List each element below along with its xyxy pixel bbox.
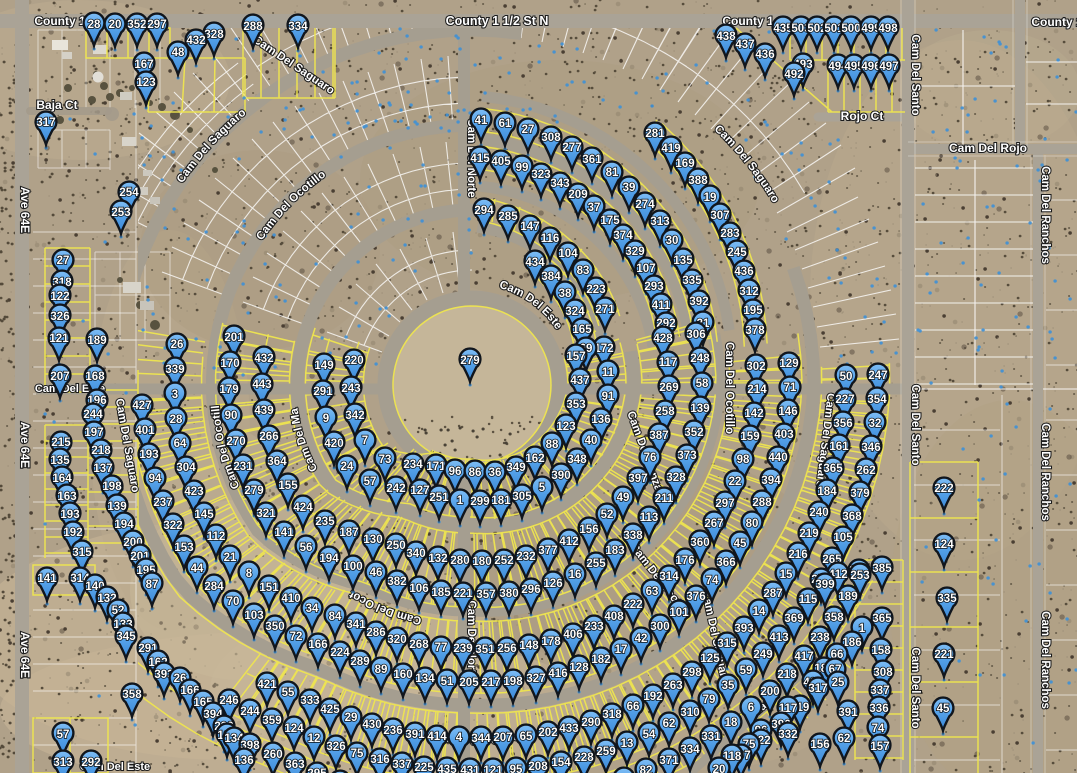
svg-text:417: 417 <box>794 651 813 663</box>
svg-text:192: 192 <box>63 527 82 539</box>
svg-text:166: 166 <box>308 639 327 651</box>
svg-text:11: 11 <box>602 367 615 379</box>
svg-text:281: 281 <box>645 128 665 140</box>
svg-text:113: 113 <box>640 512 659 524</box>
svg-text:245: 245 <box>727 247 747 259</box>
svg-text:132: 132 <box>428 553 447 565</box>
svg-text:365: 365 <box>872 613 892 625</box>
svg-text:237: 237 <box>153 497 172 509</box>
svg-text:99: 99 <box>516 162 529 174</box>
svg-text:359: 359 <box>262 715 281 727</box>
svg-text:124: 124 <box>284 723 304 735</box>
svg-text:15: 15 <box>780 569 793 581</box>
svg-text:315: 315 <box>717 638 737 650</box>
svg-text:128: 128 <box>569 662 589 674</box>
svg-text:162: 162 <box>525 453 544 465</box>
svg-text:151: 151 <box>259 582 279 594</box>
svg-text:437: 437 <box>735 39 754 51</box>
svg-text:313: 313 <box>53 757 72 769</box>
svg-text:263: 263 <box>663 680 682 692</box>
svg-text:41: 41 <box>475 115 488 127</box>
svg-text:224: 224 <box>330 647 350 659</box>
svg-text:340: 340 <box>406 548 425 560</box>
svg-text:45: 45 <box>937 703 950 715</box>
svg-text:344: 344 <box>471 733 491 745</box>
svg-text:217: 217 <box>481 677 500 689</box>
svg-text:Baja Ct: Baja Ct <box>36 98 77 112</box>
svg-text:391: 391 <box>838 707 858 719</box>
svg-text:139: 139 <box>107 501 126 513</box>
svg-text:297: 297 <box>715 498 734 510</box>
svg-text:193: 193 <box>60 509 79 521</box>
svg-text:397: 397 <box>628 473 647 485</box>
svg-text:356: 356 <box>833 418 852 430</box>
svg-text:50: 50 <box>840 371 853 383</box>
svg-text:313: 313 <box>650 216 669 228</box>
svg-text:170: 170 <box>220 358 239 370</box>
svg-text:75: 75 <box>351 748 364 760</box>
svg-text:222: 222 <box>623 599 642 611</box>
svg-text:198: 198 <box>102 481 122 493</box>
svg-text:267: 267 <box>704 518 723 530</box>
svg-text:360: 360 <box>690 537 709 549</box>
svg-text:335: 335 <box>937 593 957 605</box>
svg-text:88: 88 <box>546 439 559 451</box>
svg-text:361: 361 <box>582 154 602 166</box>
svg-text:421: 421 <box>257 679 277 691</box>
svg-text:194: 194 <box>114 519 134 531</box>
svg-text:189: 189 <box>87 335 106 347</box>
svg-text:87: 87 <box>146 579 159 591</box>
svg-text:84: 84 <box>329 611 342 623</box>
svg-text:14: 14 <box>753 606 766 618</box>
svg-text:136: 136 <box>591 414 610 426</box>
svg-text:411: 411 <box>652 300 671 312</box>
svg-text:61: 61 <box>499 118 512 130</box>
svg-text:35: 35 <box>722 680 735 692</box>
svg-text:304: 304 <box>176 462 196 474</box>
svg-text:238: 238 <box>810 632 830 644</box>
svg-text:32: 32 <box>869 418 882 430</box>
svg-text:249: 249 <box>753 649 772 661</box>
svg-text:244: 244 <box>83 409 103 421</box>
svg-text:251: 251 <box>429 492 449 504</box>
svg-text:500: 500 <box>841 23 860 35</box>
svg-text:58: 58 <box>696 378 709 390</box>
svg-text:352: 352 <box>684 427 703 439</box>
svg-text:392: 392 <box>689 296 708 308</box>
svg-text:42: 42 <box>635 633 648 645</box>
svg-text:169: 169 <box>675 158 694 170</box>
svg-text:112: 112 <box>207 531 226 543</box>
svg-text:384: 384 <box>541 271 561 283</box>
svg-text:168: 168 <box>85 371 105 383</box>
svg-text:279: 279 <box>460 355 479 367</box>
svg-text:269: 269 <box>659 382 678 394</box>
svg-text:117: 117 <box>659 357 678 369</box>
svg-text:415: 415 <box>470 153 490 165</box>
svg-text:County 1: County 1 <box>34 14 86 28</box>
svg-text:73: 73 <box>379 454 392 466</box>
svg-text:219: 219 <box>799 528 818 540</box>
svg-text:200: 200 <box>760 686 779 698</box>
svg-text:357: 357 <box>476 589 495 601</box>
svg-text:179: 179 <box>219 384 238 396</box>
svg-text:184: 184 <box>817 486 837 498</box>
svg-text:443: 443 <box>252 379 271 391</box>
svg-text:291: 291 <box>313 386 333 398</box>
svg-text:161: 161 <box>829 441 849 453</box>
svg-text:201: 201 <box>224 332 244 344</box>
svg-text:101: 101 <box>669 607 689 619</box>
svg-text:283: 283 <box>720 228 739 240</box>
svg-text:256: 256 <box>497 643 516 655</box>
svg-text:403: 403 <box>774 429 793 441</box>
svg-text:338: 338 <box>623 530 643 542</box>
svg-text:27: 27 <box>522 124 535 136</box>
svg-text:316: 316 <box>370 754 389 766</box>
svg-text:30: 30 <box>666 235 679 247</box>
svg-text:279: 279 <box>244 485 263 497</box>
svg-text:320: 320 <box>387 634 406 646</box>
svg-text:393: 393 <box>734 623 753 635</box>
svg-text:Rojo Ct: Rojo Ct <box>841 109 884 123</box>
svg-text:171: 171 <box>426 461 446 473</box>
svg-text:37: 37 <box>588 202 601 214</box>
svg-text:376: 376 <box>686 591 705 603</box>
svg-text:9: 9 <box>323 413 329 425</box>
svg-text:419: 419 <box>661 143 680 155</box>
svg-text:286: 286 <box>366 627 385 639</box>
svg-text:26: 26 <box>171 339 184 351</box>
svg-text:259: 259 <box>596 746 615 758</box>
svg-text:207: 207 <box>493 732 512 744</box>
svg-text:343: 343 <box>550 178 569 190</box>
svg-text:57: 57 <box>364 476 377 488</box>
svg-text:390: 390 <box>551 470 570 482</box>
svg-text:115: 115 <box>799 594 818 606</box>
svg-text:290: 290 <box>581 717 600 729</box>
svg-text:100: 100 <box>343 561 362 573</box>
svg-text:40: 40 <box>585 435 598 447</box>
svg-text:1: 1 <box>859 623 866 635</box>
svg-text:19: 19 <box>704 192 717 204</box>
svg-text:312: 312 <box>739 286 758 298</box>
svg-text:194: 194 <box>319 553 339 565</box>
svg-text:349: 349 <box>506 462 525 474</box>
svg-text:57: 57 <box>57 729 70 741</box>
svg-text:159: 159 <box>740 431 759 443</box>
svg-text:314: 314 <box>659 571 679 583</box>
svg-text:302: 302 <box>746 361 765 373</box>
svg-text:4: 4 <box>456 732 463 744</box>
svg-text:192: 192 <box>643 691 662 703</box>
svg-text:327: 327 <box>526 673 545 685</box>
svg-text:142: 142 <box>744 408 763 420</box>
svg-text:358: 358 <box>122 689 142 701</box>
svg-text:232: 232 <box>516 551 535 563</box>
svg-text:163: 163 <box>57 491 76 503</box>
svg-text:307: 307 <box>710 210 729 222</box>
svg-text:334: 334 <box>680 744 700 756</box>
svg-text:141: 141 <box>37 573 57 585</box>
svg-text:129: 129 <box>779 358 798 370</box>
svg-text:77: 77 <box>435 642 448 654</box>
svg-text:248: 248 <box>690 353 710 365</box>
svg-text:337: 337 <box>870 685 889 697</box>
svg-text:412: 412 <box>559 536 578 548</box>
svg-text:165: 165 <box>572 324 592 336</box>
svg-text:64: 64 <box>174 438 187 450</box>
svg-text:387: 387 <box>649 430 668 442</box>
svg-text:149: 149 <box>314 360 333 372</box>
svg-text:197: 197 <box>84 427 103 439</box>
svg-text:145: 145 <box>194 509 214 521</box>
svg-text:430: 430 <box>362 719 381 731</box>
svg-text:135: 135 <box>673 255 693 267</box>
svg-text:334: 334 <box>288 21 308 33</box>
svg-text:189: 189 <box>838 591 857 603</box>
svg-text:240: 240 <box>809 507 828 519</box>
svg-text:296: 296 <box>521 584 540 596</box>
svg-text:28: 28 <box>88 19 101 31</box>
svg-text:164: 164 <box>52 473 72 485</box>
svg-text:266: 266 <box>259 431 278 443</box>
svg-text:158: 158 <box>871 645 891 657</box>
svg-text:80: 80 <box>746 518 759 530</box>
svg-text:125: 125 <box>700 653 720 665</box>
svg-text:Cam Del Santo: Cam Del Santo <box>909 384 921 465</box>
svg-text:157: 157 <box>566 351 585 363</box>
svg-text:90: 90 <box>225 410 238 422</box>
svg-text:324: 324 <box>565 306 585 318</box>
svg-text:292: 292 <box>81 757 100 769</box>
svg-text:121: 121 <box>49 333 69 345</box>
svg-text:208: 208 <box>528 761 548 773</box>
svg-text:254: 254 <box>119 187 139 199</box>
svg-text:437: 437 <box>570 375 589 387</box>
svg-text:323: 323 <box>531 169 550 181</box>
svg-text:399: 399 <box>815 579 834 591</box>
svg-text:250: 250 <box>386 540 405 552</box>
svg-text:405: 405 <box>491 156 511 168</box>
svg-text:280: 280 <box>450 555 469 567</box>
svg-text:243: 243 <box>341 383 360 395</box>
svg-text:76: 76 <box>644 452 657 464</box>
svg-text:382: 382 <box>387 576 406 588</box>
svg-text:295: 295 <box>307 768 327 773</box>
svg-text:391: 391 <box>405 729 425 741</box>
svg-text:220: 220 <box>344 355 363 367</box>
svg-text:353: 353 <box>566 399 585 411</box>
svg-text:105: 105 <box>833 532 853 544</box>
svg-text:Cam Del Santo: Cam Del Santo <box>909 34 921 115</box>
svg-text:185: 185 <box>431 587 451 599</box>
svg-text:308: 308 <box>873 667 893 679</box>
svg-text:298: 298 <box>682 667 702 679</box>
svg-text:127: 127 <box>410 485 429 497</box>
svg-text:Cam Del Santo: Cam Del Santo <box>909 647 921 728</box>
svg-text:44: 44 <box>191 563 204 575</box>
svg-text:13: 13 <box>621 738 634 750</box>
svg-text:Cam Del Ocotillo: Cam Del Ocotillo <box>723 342 735 434</box>
svg-text:388: 388 <box>688 175 708 187</box>
svg-text:176: 176 <box>675 555 694 567</box>
svg-text:81: 81 <box>606 167 619 179</box>
svg-text:246: 246 <box>219 695 238 707</box>
svg-text:123: 123 <box>136 77 155 89</box>
svg-text:202: 202 <box>538 727 557 739</box>
svg-text:423: 423 <box>184 486 203 498</box>
svg-text:235: 235 <box>315 516 335 528</box>
svg-text:County 1 1/2 St N: County 1 1/2 St N <box>446 14 549 28</box>
svg-text:253: 253 <box>850 570 869 582</box>
svg-text:207: 207 <box>50 371 69 383</box>
svg-text:167: 167 <box>134 59 153 71</box>
svg-text:300: 300 <box>650 621 669 633</box>
svg-text:24: 24 <box>341 461 354 473</box>
svg-text:65: 65 <box>520 731 533 743</box>
svg-text:Cam Del Ranchos: Cam Del Ranchos <box>1039 611 1051 709</box>
svg-text:20: 20 <box>713 764 726 773</box>
svg-text:435: 435 <box>437 764 457 773</box>
svg-text:89: 89 <box>375 664 388 676</box>
svg-text:6: 6 <box>748 702 754 714</box>
svg-text:Ave 64E: Ave 64E <box>18 422 32 468</box>
svg-text:336: 336 <box>869 703 888 715</box>
svg-text:351: 351 <box>475 644 495 656</box>
svg-text:79: 79 <box>703 694 716 706</box>
svg-text:255: 255 <box>586 558 606 570</box>
svg-text:181: 181 <box>491 495 511 507</box>
svg-text:431: 431 <box>460 765 480 773</box>
svg-text:427: 427 <box>132 400 151 412</box>
svg-text:285: 285 <box>498 211 518 223</box>
svg-text:252: 252 <box>494 555 513 567</box>
svg-text:126: 126 <box>543 578 562 590</box>
svg-text:378: 378 <box>745 325 765 337</box>
svg-text:321: 321 <box>256 508 276 520</box>
svg-text:Ave 64E: Ave 64E <box>18 187 32 233</box>
svg-text:328: 328 <box>666 472 686 484</box>
svg-text:308: 308 <box>541 132 561 144</box>
svg-text:358: 358 <box>824 612 844 624</box>
svg-text:379: 379 <box>850 488 869 500</box>
svg-text:416: 416 <box>548 668 567 680</box>
svg-text:373: 373 <box>677 450 696 462</box>
svg-text:408: 408 <box>604 611 624 623</box>
svg-text:294: 294 <box>474 205 494 217</box>
svg-text:34: 34 <box>306 603 319 615</box>
svg-text:222: 222 <box>934 483 953 495</box>
svg-text:310: 310 <box>680 707 699 719</box>
svg-text:432: 432 <box>254 353 273 365</box>
svg-text:62: 62 <box>663 718 676 730</box>
svg-text:366: 366 <box>716 557 735 569</box>
svg-text:380: 380 <box>499 588 518 600</box>
svg-text:228: 228 <box>574 752 594 764</box>
svg-text:335: 335 <box>682 275 702 287</box>
svg-text:337: 337 <box>392 759 411 771</box>
svg-text:492: 492 <box>784 69 803 81</box>
svg-text:155: 155 <box>278 480 298 492</box>
svg-text:368: 368 <box>842 511 862 523</box>
svg-text:260: 260 <box>263 749 282 761</box>
svg-text:91: 91 <box>602 391 615 403</box>
svg-text:38: 38 <box>559 288 572 300</box>
svg-text:156: 156 <box>810 739 829 751</box>
svg-text:306: 306 <box>686 329 705 341</box>
svg-text:56: 56 <box>300 542 313 554</box>
svg-text:County 1: County 1 <box>1031 15 1077 29</box>
svg-text:420: 420 <box>324 438 343 450</box>
svg-text:329: 329 <box>625 246 644 258</box>
svg-text:498: 498 <box>878 23 898 35</box>
svg-text:62: 62 <box>838 733 851 745</box>
svg-text:214: 214 <box>747 384 767 396</box>
svg-text:139: 139 <box>690 403 709 415</box>
svg-text:305: 305 <box>512 491 532 503</box>
svg-text:374: 374 <box>613 230 633 242</box>
svg-text:284: 284 <box>204 581 224 593</box>
svg-text:365: 365 <box>823 463 843 475</box>
svg-text:401: 401 <box>135 425 155 437</box>
svg-text:5: 5 <box>539 482 546 494</box>
svg-text:274: 274 <box>635 199 655 211</box>
svg-text:195: 195 <box>743 305 763 317</box>
svg-text:345: 345 <box>116 631 136 643</box>
svg-text:239: 239 <box>453 643 472 655</box>
svg-text:106: 106 <box>409 583 428 595</box>
svg-text:225: 225 <box>414 762 434 773</box>
svg-text:103: 103 <box>244 610 263 622</box>
svg-text:352: 352 <box>127 19 146 31</box>
svg-text:136: 136 <box>234 755 253 767</box>
svg-text:346: 346 <box>861 442 880 454</box>
svg-text:160: 160 <box>393 669 412 681</box>
svg-text:258: 258 <box>655 406 675 418</box>
svg-text:288: 288 <box>243 21 263 33</box>
svg-text:354: 354 <box>867 394 887 406</box>
svg-text:147: 147 <box>520 221 539 233</box>
svg-text:424: 424 <box>293 502 313 514</box>
svg-text:22: 22 <box>729 476 742 488</box>
svg-text:253: 253 <box>111 207 130 219</box>
svg-text:18: 18 <box>725 717 738 729</box>
svg-text:394: 394 <box>761 475 781 487</box>
svg-text:182: 182 <box>591 654 610 666</box>
svg-text:193: 193 <box>139 449 158 461</box>
svg-text:288: 288 <box>752 497 772 509</box>
svg-text:107: 107 <box>636 263 655 275</box>
svg-text:104: 104 <box>558 248 578 260</box>
svg-text:122: 122 <box>50 291 69 303</box>
svg-text:439: 439 <box>254 405 273 417</box>
svg-text:236: 236 <box>383 725 402 737</box>
svg-text:154: 154 <box>551 757 571 769</box>
svg-text:7: 7 <box>362 435 368 447</box>
svg-text:410: 410 <box>281 593 300 605</box>
svg-text:317: 317 <box>808 683 827 695</box>
svg-text:94: 94 <box>149 473 162 485</box>
svg-text:156: 156 <box>579 524 598 536</box>
svg-text:244: 244 <box>240 706 260 718</box>
svg-text:153: 153 <box>174 542 193 554</box>
svg-text:124: 124 <box>934 539 954 551</box>
svg-text:234: 234 <box>403 459 423 471</box>
svg-text:141: 141 <box>274 527 294 539</box>
svg-text:49: 49 <box>617 492 630 504</box>
